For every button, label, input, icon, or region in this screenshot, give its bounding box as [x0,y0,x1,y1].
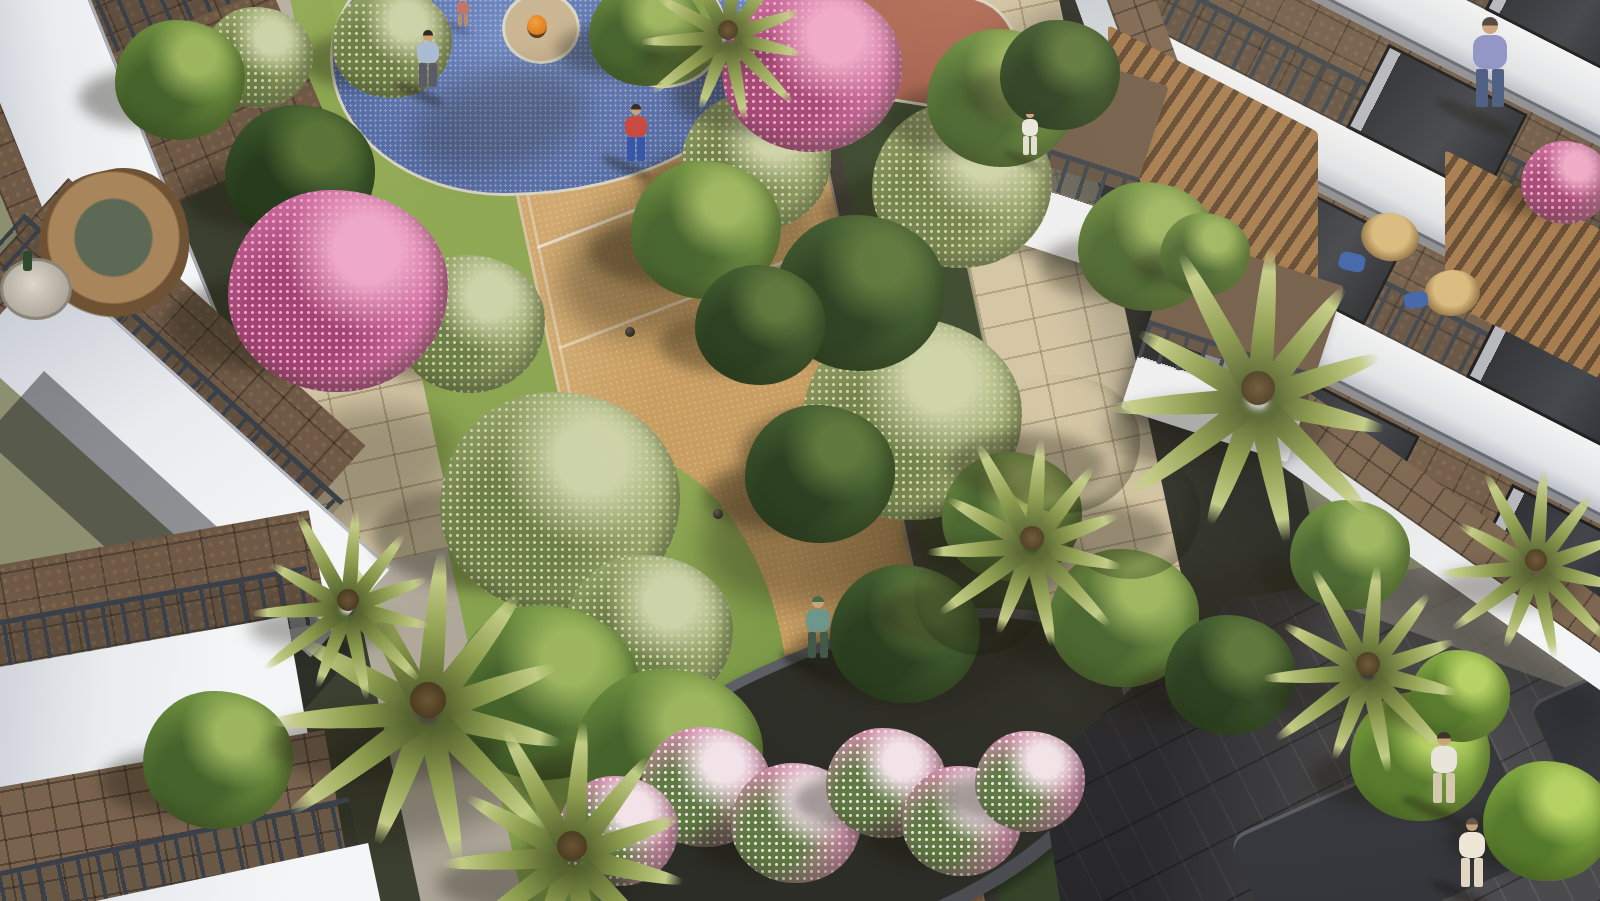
person-legs [1476,69,1504,107]
person-leg [1492,69,1504,107]
person-leg [1461,858,1470,887]
person-torso [625,116,646,138]
person-leg [1433,773,1442,803]
person-leg [1023,136,1029,155]
person-woman-on-balcony [1018,110,1041,162]
person-head [812,596,824,608]
person-legs [419,63,437,87]
person-legs [808,632,827,658]
person-leg [637,137,644,161]
person-leg [1031,136,1037,155]
person-torso [417,42,438,64]
person-leg [458,14,462,26]
person-child-top-edge [455,0,470,30]
person-man-on-balcony [1466,17,1513,122]
person-leg [820,632,828,658]
person-leg [627,137,634,161]
person-head [1482,17,1499,34]
person-torso [457,2,468,13]
person-pedestrian-cream-outfit [1454,818,1490,898]
person-legs [1461,858,1483,887]
aerial-courtyard-architectural-render [0,0,1600,901]
person-leg [419,63,426,87]
person-legs [627,137,645,161]
person-head [631,104,642,115]
person-head [423,30,434,41]
person-torso [806,609,829,633]
person-torso [1431,746,1458,773]
people-layer [0,0,1600,901]
person-pedestrian-white-shirt [1426,732,1463,814]
person-leg [1476,69,1488,107]
person-leg [1446,773,1455,803]
person-legs [1023,136,1037,155]
person-torso [1022,119,1039,136]
person-head [1466,818,1479,831]
person-legs [1433,773,1455,803]
person-legs [458,14,467,26]
person-leg [808,632,816,658]
person-child-on-playground [413,30,443,96]
person-leg [429,63,436,87]
person-head [460,0,465,1]
person-leg [1474,858,1483,887]
person-torso [1459,832,1485,858]
person-head [1026,110,1034,118]
person-head [1437,732,1450,745]
person-leg [464,14,468,26]
person-volleyball-player-center [802,596,834,668]
person-torso [1473,35,1507,70]
person-volleyball-player-near-net [621,104,651,170]
